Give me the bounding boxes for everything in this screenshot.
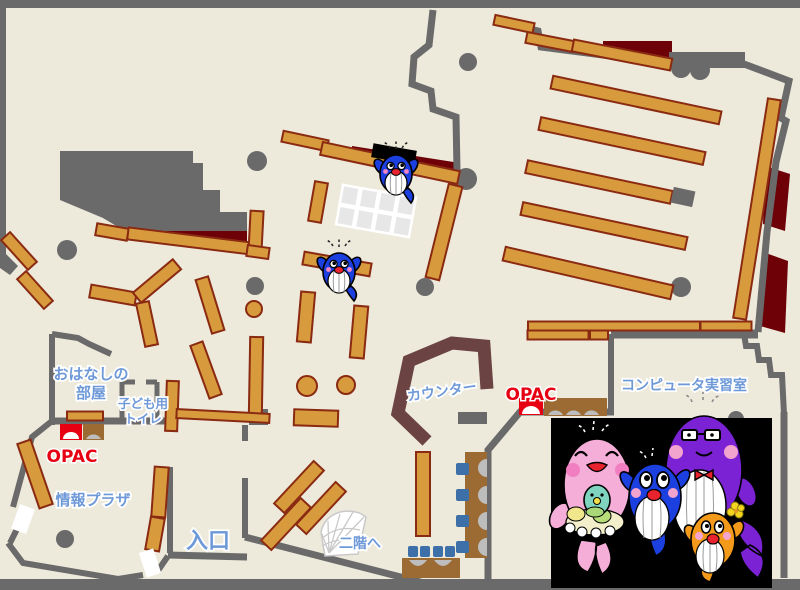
label-storytime-room-line1: おはなしの xyxy=(53,365,128,383)
label-computer-room: コンピュータ実習室 xyxy=(621,377,747,394)
label-opac-left: OPAC xyxy=(47,447,98,467)
label-opac-right: OPAC xyxy=(506,385,557,405)
label-to-second-floor: 二階へ xyxy=(339,535,381,552)
opac-terminal-left xyxy=(60,424,104,440)
floor-plan-canvas: おはなしの 部屋 子ども用 トイレ OPAC OPAC 情報プラザ 入口 二階へ… xyxy=(0,0,800,590)
mascot-family-photo xyxy=(545,392,772,588)
label-storytime-room-line2: 部屋 xyxy=(76,384,106,402)
label-info-plaza: 情報プラザ xyxy=(55,491,130,509)
library-floor-map: おはなしの 部屋 子ども用 トイレ OPAC OPAC 情報プラザ 入口 二階へ… xyxy=(0,0,800,590)
label-entrance: 入口 xyxy=(186,529,230,554)
label-kids-toilet-line1: 子ども用 xyxy=(118,396,168,411)
label-kids-toilet-line2: トイレ xyxy=(124,411,162,426)
